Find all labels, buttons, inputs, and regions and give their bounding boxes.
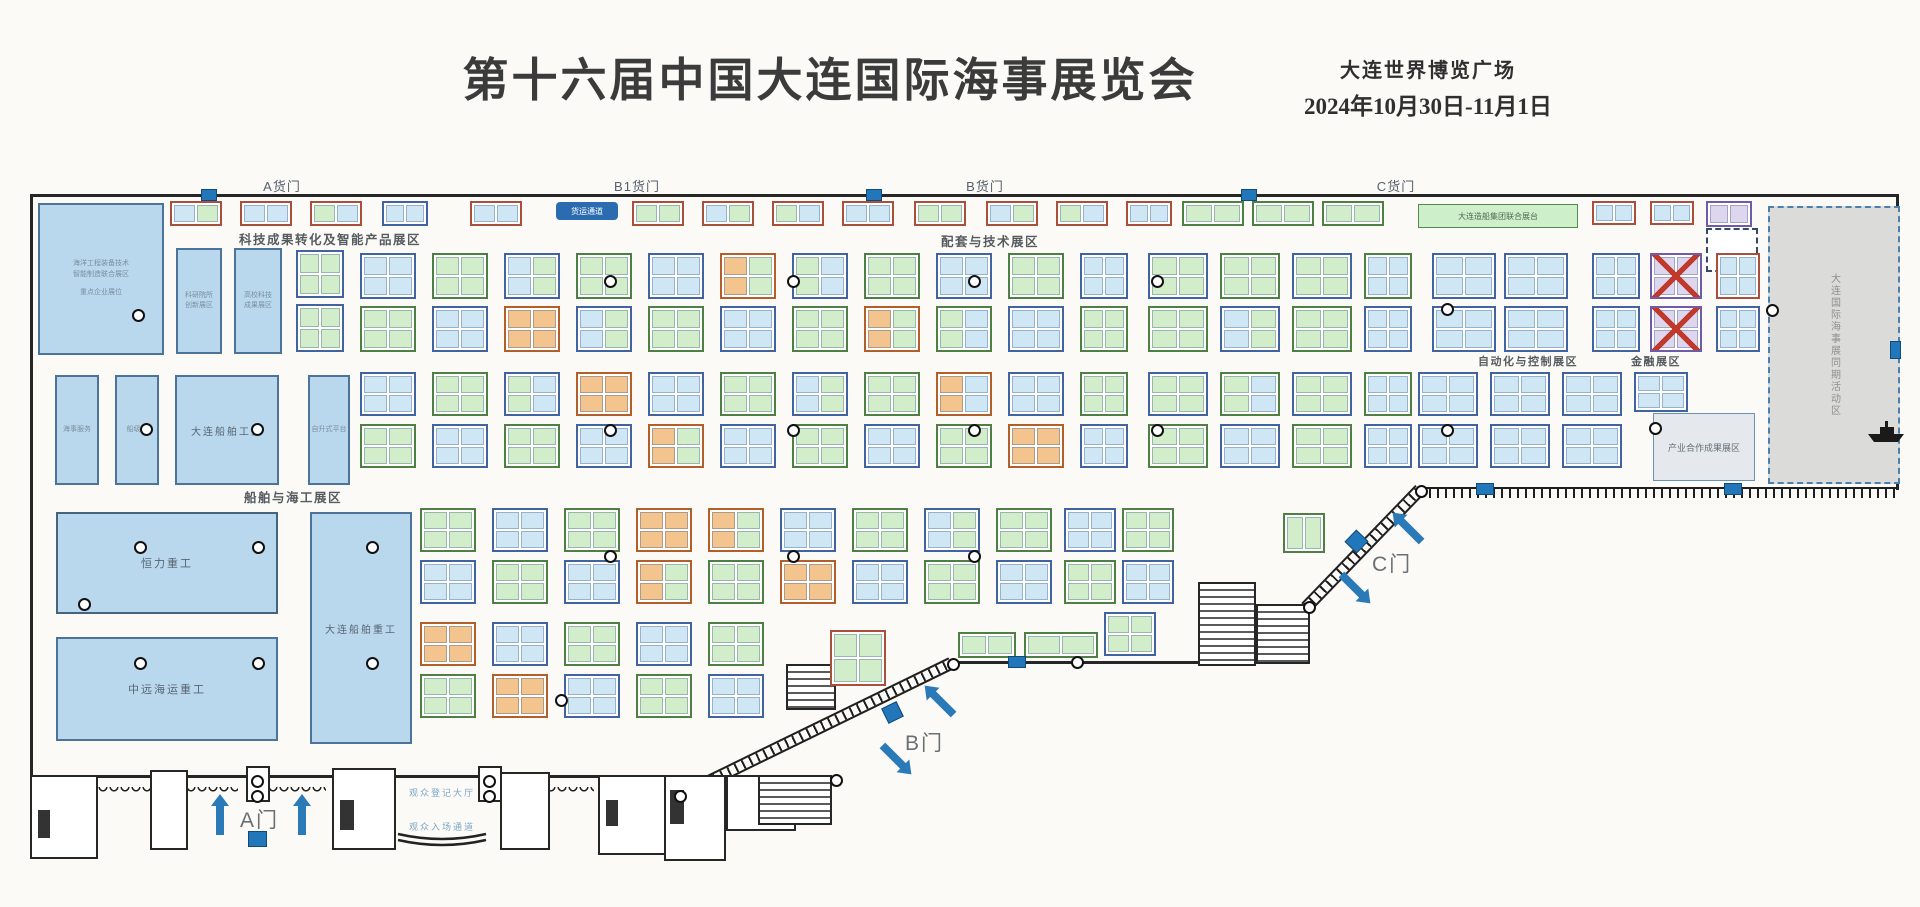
booth-cell xyxy=(1296,310,1321,328)
blue-door-marker xyxy=(1724,483,1742,495)
booth-cluster xyxy=(1504,253,1568,299)
booth-cell xyxy=(1012,257,1035,275)
booth-cell xyxy=(796,376,819,393)
booth-cluster xyxy=(720,253,776,299)
pillar xyxy=(1441,424,1454,437)
booth-cell xyxy=(1494,447,1519,464)
booth-cell xyxy=(1105,310,1124,328)
booth-cell xyxy=(300,308,319,327)
booth-cell xyxy=(940,330,963,348)
booth-cell xyxy=(1449,376,1474,393)
booth-cell xyxy=(1251,277,1276,295)
booth-cell xyxy=(665,678,688,695)
booth-cluster xyxy=(1592,306,1640,352)
booth-cell xyxy=(834,659,857,682)
booth-cell xyxy=(749,395,772,412)
booth-cell xyxy=(496,678,519,695)
booth-cell xyxy=(868,447,891,464)
booth-cell xyxy=(868,376,891,393)
booth-cell xyxy=(1068,531,1089,548)
booth-cell xyxy=(809,531,832,548)
booth-cell xyxy=(652,428,675,445)
booth-cell xyxy=(665,697,688,714)
booth-cell xyxy=(1389,330,1408,348)
booth-cell xyxy=(1389,277,1408,295)
booth-cell xyxy=(580,428,603,445)
booth-cell xyxy=(809,564,832,581)
booth-cell xyxy=(1126,583,1147,600)
booth-cluster xyxy=(360,253,416,299)
booth-cluster xyxy=(842,201,894,226)
booth-cell xyxy=(1037,310,1060,328)
booth-cell xyxy=(521,697,544,714)
booth-cell xyxy=(1152,310,1177,328)
booth-cell xyxy=(364,376,387,393)
booth-cell xyxy=(990,205,1011,222)
booth-cell xyxy=(389,330,412,348)
booth-cell xyxy=(521,564,544,581)
booth-cell xyxy=(1739,330,1756,348)
booth-cluster xyxy=(432,372,488,416)
booth-cell xyxy=(1566,428,1591,445)
booth-cell xyxy=(1126,531,1147,548)
booth-cell xyxy=(605,310,628,328)
booth-cell xyxy=(918,205,939,222)
booth-cell xyxy=(1521,447,1546,464)
pillar xyxy=(555,694,568,707)
booth-cell xyxy=(533,277,556,295)
booth-cell xyxy=(1037,447,1060,464)
booth-cell xyxy=(386,205,404,222)
booth-cell xyxy=(364,447,387,464)
booth-cell xyxy=(965,310,988,328)
booth-cell xyxy=(1465,257,1492,275)
booth-cell xyxy=(1494,395,1519,412)
booth-cell xyxy=(568,583,591,600)
booth-cell xyxy=(300,275,319,294)
booth-cell xyxy=(1224,447,1249,464)
booth-cluster xyxy=(864,306,920,352)
booth-cell xyxy=(1739,310,1756,328)
booth-cell xyxy=(436,257,459,275)
booth-cell xyxy=(1739,257,1756,275)
booth-cell xyxy=(712,645,735,662)
booth-cell xyxy=(1436,277,1463,295)
booth-cell xyxy=(449,583,472,600)
booth-cell xyxy=(1354,205,1380,222)
booth-cell xyxy=(1037,428,1060,445)
booth-cluster xyxy=(792,306,848,352)
booth-cluster xyxy=(1104,612,1156,656)
booth-cluster xyxy=(296,250,344,298)
pillar xyxy=(483,790,496,803)
booth-cell xyxy=(1091,564,1112,581)
booth-cell xyxy=(868,310,891,328)
booth-cell xyxy=(424,564,447,581)
pillar xyxy=(968,550,981,563)
booth-cell xyxy=(1508,310,1535,328)
booth-cluster xyxy=(1490,372,1550,416)
booth-cell xyxy=(1368,376,1387,393)
booth-cell xyxy=(1521,376,1546,393)
pillar xyxy=(78,598,91,611)
booth-cell xyxy=(724,395,747,412)
booth-cluster xyxy=(636,674,692,718)
booth-cell xyxy=(1256,205,1282,222)
booth-cell xyxy=(1296,277,1321,295)
booth-cell xyxy=(1037,395,1060,412)
booth-cell xyxy=(1000,512,1023,529)
booth-cluster xyxy=(564,674,620,718)
booth-cell xyxy=(1617,330,1636,348)
booth-cell xyxy=(809,512,832,529)
booth-cell xyxy=(1389,395,1408,412)
booth-cell xyxy=(1593,395,1618,412)
entrance-direction-arrow xyxy=(930,691,957,718)
pillar xyxy=(366,657,379,670)
booth-cell xyxy=(640,531,663,548)
booth-cell xyxy=(1025,583,1048,600)
booth-cell xyxy=(406,205,424,222)
booth-cell xyxy=(1037,257,1060,275)
booth-cell xyxy=(314,205,335,222)
booth-cluster xyxy=(1008,372,1064,416)
booth-cell xyxy=(605,330,628,348)
booth-cluster xyxy=(1650,201,1694,225)
booth-cell xyxy=(1389,376,1408,393)
booth-cell xyxy=(652,310,675,328)
booth-cell xyxy=(461,376,484,393)
booth-cluster xyxy=(170,201,222,226)
booth-cell xyxy=(1465,310,1492,328)
booth-cell xyxy=(940,310,963,328)
booth-cell xyxy=(965,395,988,412)
booth-cell xyxy=(1654,205,1671,221)
booth-cell xyxy=(1449,447,1474,464)
booth-cell xyxy=(1389,428,1408,445)
booth-cell xyxy=(1508,257,1535,275)
pillar xyxy=(251,790,264,803)
booth-cell xyxy=(496,626,519,643)
booth-cell xyxy=(784,583,807,600)
booth-cell xyxy=(1091,583,1112,600)
booth-cell xyxy=(784,531,807,548)
booth-cell xyxy=(1028,636,1060,654)
booth-cluster xyxy=(1122,508,1174,552)
booth-cell xyxy=(640,678,663,695)
blue-door-marker xyxy=(866,189,882,201)
booth-cluster xyxy=(1024,632,1098,658)
booth-cell xyxy=(677,277,700,295)
booth-cell xyxy=(1084,395,1103,412)
entrance-direction-arrow xyxy=(298,805,306,835)
booth-cell xyxy=(508,310,531,328)
booth-cluster xyxy=(830,630,886,686)
booth-cell xyxy=(533,330,556,348)
booth-cell xyxy=(1037,376,1060,393)
booth-cell xyxy=(1638,393,1660,408)
booth-cell xyxy=(580,395,603,412)
booth-cell xyxy=(665,512,688,529)
booth-cell xyxy=(449,626,472,643)
pillar xyxy=(134,657,147,670)
booth-cell xyxy=(1224,376,1249,393)
booth-cell xyxy=(1025,512,1048,529)
booth-cell xyxy=(1062,636,1094,654)
booth-cluster xyxy=(996,560,1052,604)
booth-cell xyxy=(881,531,904,548)
booth-cell xyxy=(1720,277,1737,295)
booth-cell xyxy=(965,257,988,275)
booth-cell xyxy=(1105,395,1124,412)
pillar xyxy=(483,775,496,788)
booth-cluster xyxy=(564,622,620,666)
booth-cell xyxy=(953,512,976,529)
booth-cell xyxy=(1422,376,1447,393)
booth-cluster xyxy=(1592,253,1640,299)
booth-cell xyxy=(953,531,976,548)
booth-cell xyxy=(893,447,916,464)
booth-cell xyxy=(508,428,531,445)
booth-cell xyxy=(1224,277,1249,295)
booth-cell xyxy=(712,678,735,695)
booth-cluster xyxy=(1148,372,1208,416)
pillar xyxy=(947,658,960,671)
booth-cell xyxy=(389,376,412,393)
booth-cell xyxy=(593,626,616,643)
booth-cell xyxy=(364,428,387,445)
booth-cell xyxy=(868,257,891,275)
pillar xyxy=(604,424,617,437)
entrance-direction-arrow xyxy=(1339,572,1366,599)
booth-cell xyxy=(436,395,459,412)
booth-cell xyxy=(881,564,904,581)
booth-cluster xyxy=(708,508,764,552)
booth-cell xyxy=(821,447,844,464)
booth-cluster xyxy=(432,253,488,299)
booth-cell xyxy=(1720,330,1737,348)
booth-cell xyxy=(605,447,628,464)
booth-cell xyxy=(568,512,591,529)
booth-cell xyxy=(436,376,459,393)
booth-cell xyxy=(508,395,531,412)
booth-cell xyxy=(496,512,519,529)
booth-cluster xyxy=(780,560,836,604)
booth-cell xyxy=(962,636,986,654)
booth-cell xyxy=(1084,376,1103,393)
booth-cell xyxy=(893,376,916,393)
booth-cell xyxy=(1012,310,1035,328)
booth-cell xyxy=(436,428,459,445)
booth-cluster xyxy=(864,424,920,468)
booth-cluster xyxy=(1080,253,1128,299)
booth-cluster xyxy=(632,201,684,226)
booth-cell xyxy=(1152,395,1177,412)
booth-cell xyxy=(533,310,556,328)
booth-cell xyxy=(1179,376,1204,393)
booth-cluster xyxy=(936,306,992,352)
booth-cell xyxy=(1105,330,1124,348)
booth-cell xyxy=(869,205,890,222)
booth-cell xyxy=(940,376,963,393)
blue-door-marker xyxy=(201,189,217,201)
booth-cell xyxy=(928,583,951,600)
booth-cell xyxy=(737,697,760,714)
booth-cell xyxy=(1179,447,1204,464)
booth-cell xyxy=(1108,635,1129,652)
booth-cell xyxy=(593,564,616,581)
booth-cell xyxy=(1105,447,1124,464)
blue-door-marker xyxy=(1344,529,1368,553)
booth-cell xyxy=(859,659,882,682)
booth-cluster xyxy=(1418,372,1478,416)
booth-cell xyxy=(1224,257,1249,275)
booth-cell xyxy=(784,564,807,581)
booth-cluster xyxy=(1292,372,1352,416)
booth-cell xyxy=(1224,395,1249,412)
booth-cell xyxy=(821,428,844,445)
booth-cell xyxy=(1368,277,1387,295)
booth-cell xyxy=(364,257,387,275)
booth-cell xyxy=(724,376,747,393)
booth-cell xyxy=(497,205,518,222)
booth-cell xyxy=(321,254,340,273)
booth-cell xyxy=(928,512,951,529)
booth-cell xyxy=(1224,310,1249,328)
booth-cell xyxy=(1084,257,1103,275)
booth-cluster xyxy=(1364,253,1412,299)
booth-cell xyxy=(677,428,700,445)
booth-cell xyxy=(1105,376,1124,393)
booth-cell xyxy=(1465,277,1492,295)
booth-cell xyxy=(1025,531,1048,548)
booth-cell xyxy=(593,512,616,529)
booth-cell xyxy=(389,257,412,275)
booth-cluster xyxy=(1716,306,1760,352)
booth-cell xyxy=(389,310,412,328)
booth-cell xyxy=(665,583,688,600)
booth-cluster xyxy=(702,201,754,226)
booth-cell xyxy=(461,428,484,445)
booth-cell xyxy=(568,697,591,714)
booth-cell xyxy=(1537,330,1564,348)
booth-cell xyxy=(496,645,519,662)
booth-cell xyxy=(1012,428,1035,445)
booth-cell xyxy=(1105,277,1124,295)
blue-door-marker xyxy=(1241,189,1257,201)
booth-cell xyxy=(1508,277,1535,295)
pillar xyxy=(1303,601,1316,614)
booth-cell xyxy=(1084,277,1103,295)
booth-cluster xyxy=(852,560,908,604)
booth-cell xyxy=(941,205,962,222)
booth-cell xyxy=(834,634,857,657)
booth-cell xyxy=(868,330,891,348)
booth-cell xyxy=(856,512,879,529)
booth-cell xyxy=(1368,330,1387,348)
booth-cell xyxy=(521,626,544,643)
pillar xyxy=(787,275,800,288)
booth-cell xyxy=(1012,376,1035,393)
booth-cell xyxy=(940,257,963,275)
booth-cell xyxy=(893,277,916,295)
booth-cell xyxy=(1025,564,1048,581)
booth-cell xyxy=(1596,330,1615,348)
floorplan xyxy=(0,0,1920,907)
booth-cell xyxy=(1126,564,1147,581)
pillar xyxy=(252,657,265,670)
booth-cluster xyxy=(1182,201,1244,226)
booth-cluster xyxy=(708,674,764,718)
pillar xyxy=(1766,304,1779,317)
booth-cell xyxy=(580,277,603,295)
booth-cell xyxy=(424,626,447,643)
booth-cell xyxy=(677,376,700,393)
booth-cell xyxy=(859,634,882,657)
booth-cell xyxy=(724,277,747,295)
booth-cluster xyxy=(1220,372,1280,416)
booth-cell xyxy=(846,205,867,222)
booth-cluster xyxy=(492,508,548,552)
booth-cell xyxy=(605,257,628,275)
booth-cell xyxy=(640,697,663,714)
booth-cell xyxy=(712,564,735,581)
booth-cell xyxy=(1596,205,1613,221)
booth-cluster xyxy=(1056,201,1108,226)
booth-cluster xyxy=(1064,560,1116,604)
booth-cell xyxy=(436,447,459,464)
booth-cell xyxy=(1323,395,1348,412)
booth-cluster xyxy=(504,253,560,299)
booth-cell xyxy=(1323,428,1348,445)
booth-cell xyxy=(737,678,760,695)
booth-cell xyxy=(321,275,340,294)
booth-cell xyxy=(389,428,412,445)
booth-cluster xyxy=(780,508,836,552)
booth-cell xyxy=(965,330,988,348)
booth-cell xyxy=(1617,310,1636,328)
booth-cell xyxy=(1710,205,1728,223)
booth-cell xyxy=(821,330,844,348)
booth-cell xyxy=(1596,277,1615,295)
booth-cluster xyxy=(576,372,632,416)
pillar xyxy=(604,550,617,563)
pillar xyxy=(1441,303,1454,316)
booth-cluster xyxy=(1080,306,1128,352)
booth-cell xyxy=(1012,330,1035,348)
booth-cluster xyxy=(1716,253,1760,299)
booth-cell xyxy=(1449,395,1474,412)
booth-cell xyxy=(1084,330,1103,348)
booth-cell xyxy=(321,329,340,348)
booth-cluster xyxy=(936,372,992,416)
booth-cell xyxy=(1287,517,1303,549)
booth-cluster xyxy=(1592,201,1636,225)
booth-cluster xyxy=(1292,253,1352,299)
booth-cell xyxy=(1084,428,1103,445)
booth-cell xyxy=(449,531,472,548)
booth-cell xyxy=(1131,616,1152,633)
booth-cell xyxy=(749,376,772,393)
booth-cell xyxy=(724,330,747,348)
booth-cell xyxy=(881,512,904,529)
booth-cluster xyxy=(852,508,908,552)
booth-cell xyxy=(1149,564,1170,581)
booth-cell xyxy=(1323,277,1348,295)
booth-cell xyxy=(1494,376,1519,393)
booth-cell xyxy=(1508,330,1535,348)
booth-cell xyxy=(533,428,556,445)
